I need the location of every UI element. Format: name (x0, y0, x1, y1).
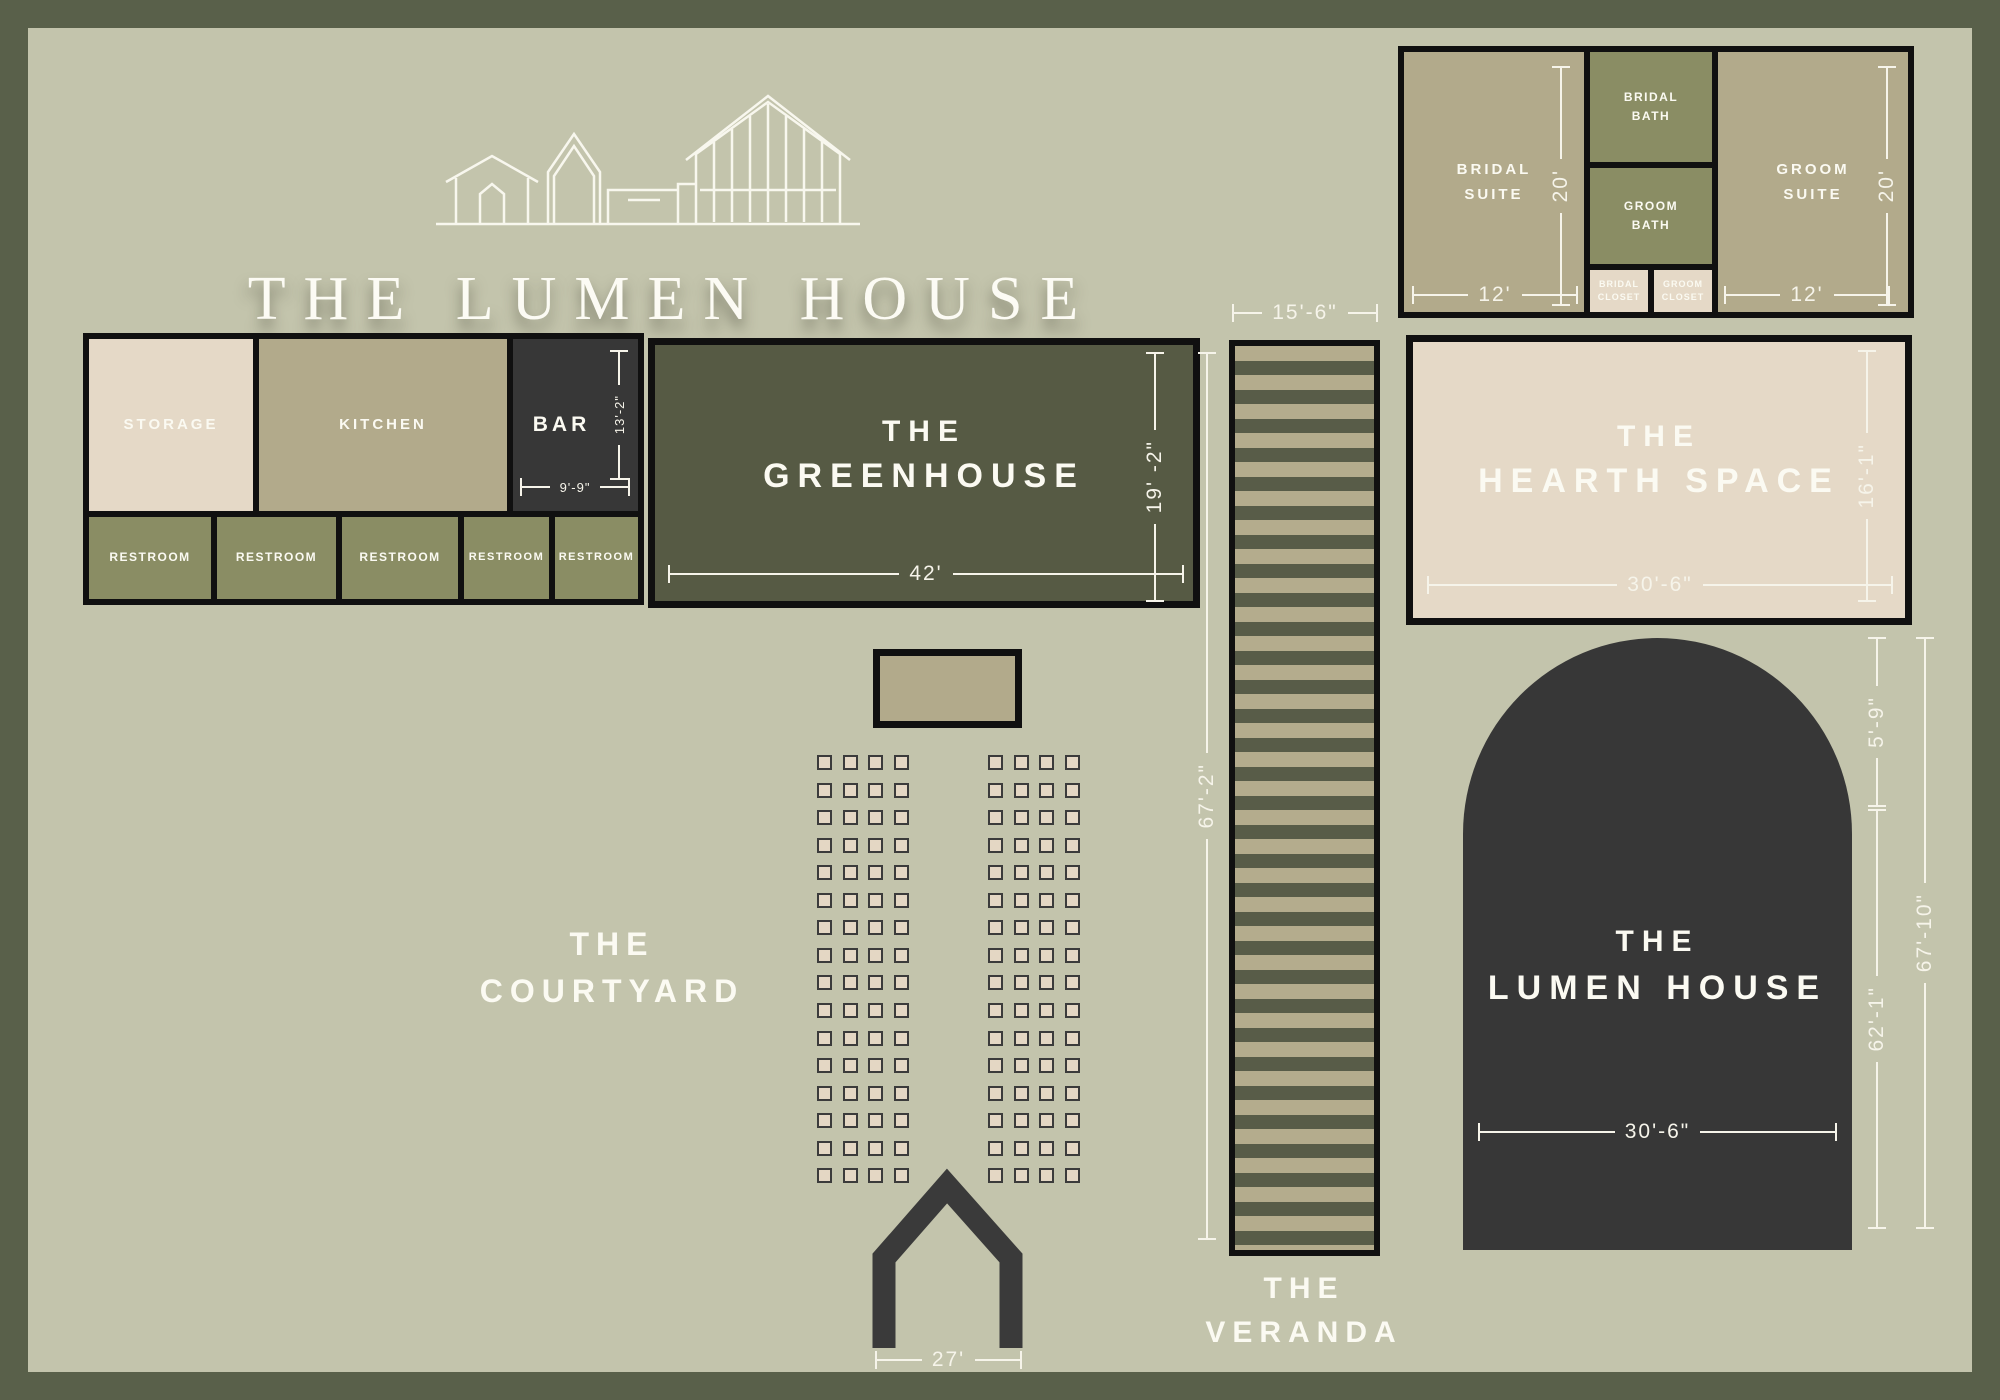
chair (1065, 1003, 1080, 1018)
bridal-closet-label: BRIDAL (1599, 279, 1639, 289)
greenhouse-height-dimension: 19' -2" (1146, 352, 1164, 602)
greenhouse-label: THE (763, 415, 1085, 449)
chair (1039, 1031, 1054, 1046)
room-kitchen: KITCHEN (259, 339, 507, 511)
chair (894, 783, 909, 798)
chair (843, 1086, 858, 1101)
lumen-house-lower-height-dimension: 62'-1" (1868, 809, 1886, 1229)
chair (843, 1113, 858, 1128)
restroom-label: RESTROOM (236, 548, 317, 567)
chair (988, 1141, 1003, 1156)
chair (1039, 755, 1054, 770)
kitchen-label: KITCHEN (339, 412, 427, 438)
venue-floor-plan: THE LUMEN HOUSE BRIDAL SUITE BRIDAL BATH… (0, 0, 2000, 1400)
hearth-height-dimension: 16'-1" (1858, 350, 1876, 602)
restroom-label: RESTROOM (559, 549, 635, 567)
room-restroom-2: RESTROOM (217, 517, 336, 599)
chair (1065, 1086, 1080, 1101)
chair (843, 755, 858, 770)
chair (894, 755, 909, 770)
bar-height-dimension: 13'-2" (610, 350, 628, 480)
chair (1014, 1031, 1029, 1046)
chair (1039, 1003, 1054, 1018)
chair (988, 810, 1003, 825)
chair (1014, 1141, 1029, 1156)
chair (817, 1113, 832, 1128)
groom-suite-height-dimension: 20' (1878, 66, 1896, 306)
chair (1039, 1141, 1054, 1156)
greenhouse-width-dimension: 42' (668, 565, 1184, 583)
chair (1039, 920, 1054, 935)
chair (1014, 920, 1029, 935)
ceremony-arbor (850, 1160, 1050, 1360)
groom-bath-label: GROOM (1624, 199, 1678, 213)
chair (868, 810, 883, 825)
chair (843, 975, 858, 990)
chair (1014, 755, 1029, 770)
chair (1065, 1141, 1080, 1156)
chair (1039, 893, 1054, 908)
chair (988, 1003, 1003, 1018)
chair (988, 1086, 1003, 1101)
chair (988, 948, 1003, 963)
chair (894, 1113, 909, 1128)
room-restroom-1: RESTROOM (89, 517, 211, 599)
bar-label: BAR (533, 413, 591, 437)
courtyard-stage (873, 649, 1022, 728)
room-restroom-5: RESTROOM (555, 517, 638, 599)
veranda-height-dimension: 67'-2" (1198, 352, 1216, 1240)
chair (988, 755, 1003, 770)
chair (868, 1058, 883, 1073)
chair (1065, 1058, 1080, 1073)
chair (1065, 948, 1080, 963)
chair (894, 975, 909, 990)
chair (894, 810, 909, 825)
chair (1065, 920, 1080, 935)
chair (817, 1003, 832, 1018)
chair (817, 783, 832, 798)
chair (1065, 1113, 1080, 1128)
chair (843, 893, 858, 908)
courtyard-label: THE COURTYARD (412, 926, 812, 1010)
chair (868, 1113, 883, 1128)
chair (1039, 865, 1054, 880)
venue-logo-illustration (428, 72, 868, 242)
chair (894, 1058, 909, 1073)
chair (988, 783, 1003, 798)
chair (843, 865, 858, 880)
chair (1039, 975, 1054, 990)
groom-suite-width-dimension: 12' (1724, 286, 1890, 304)
restroom-label: RESTROOM (359, 548, 440, 567)
bridal-suite-label: BRIDAL (1457, 161, 1532, 178)
room-groom-closet: GROOM CLOSET (1654, 270, 1712, 312)
chair (868, 948, 883, 963)
chair (843, 783, 858, 798)
chair (988, 838, 1003, 853)
chair (1065, 1168, 1080, 1183)
chair (1014, 810, 1029, 825)
chair (843, 1058, 858, 1073)
chair (868, 1003, 883, 1018)
chair (1039, 810, 1054, 825)
chair (894, 920, 909, 935)
chair (1039, 1058, 1054, 1073)
chair (868, 755, 883, 770)
room-restroom-4: RESTROOM (464, 517, 549, 599)
chair (894, 948, 909, 963)
room-groom-bath: GROOM BATH (1590, 168, 1712, 264)
chair (868, 1141, 883, 1156)
bar-width-dimension: 9'-9" (520, 478, 630, 496)
chair (817, 838, 832, 853)
chair (817, 1168, 832, 1183)
chair (868, 920, 883, 935)
chair (1065, 893, 1080, 908)
chair (817, 893, 832, 908)
room-bridal-closet: BRIDAL CLOSET (1590, 270, 1648, 312)
chair (843, 810, 858, 825)
restroom-label: RESTROOM (469, 549, 545, 567)
chair (843, 1003, 858, 1018)
veranda-label: THE VERANDA (1204, 1272, 1404, 1350)
lumen-house-upper-height-dimension: 5'-9" (1868, 637, 1886, 807)
veranda-width-dimension: 15'-6" (1232, 304, 1378, 322)
chair (988, 1113, 1003, 1128)
bridal-suite-width-dimension: 12' (1412, 286, 1578, 304)
chair (988, 920, 1003, 935)
room-storage: STORAGE (89, 339, 253, 511)
chair (1065, 975, 1080, 990)
chair (868, 783, 883, 798)
arbor-width-dimension: 27' (875, 1351, 1022, 1369)
chair (894, 1003, 909, 1018)
chair (817, 1058, 832, 1073)
chair (868, 1086, 883, 1101)
chair (843, 1141, 858, 1156)
chair (868, 1031, 883, 1046)
chair (988, 893, 1003, 908)
groom-closet-label: GROOM (1663, 279, 1703, 289)
chair (1014, 1113, 1029, 1128)
chair (817, 975, 832, 990)
chair (817, 755, 832, 770)
chair (1014, 783, 1029, 798)
storage-label: STORAGE (124, 412, 219, 438)
chair (894, 1031, 909, 1046)
chair (843, 838, 858, 853)
chair (988, 1058, 1003, 1073)
chair (1014, 893, 1029, 908)
chair (1039, 948, 1054, 963)
chair (1039, 1086, 1054, 1101)
chair (988, 975, 1003, 990)
room-bridal-bath: BRIDAL BATH (1590, 52, 1712, 162)
chair (1065, 783, 1080, 798)
chair (817, 948, 832, 963)
bridal-suite-height-dimension: 20' (1552, 66, 1570, 306)
chair (1039, 783, 1054, 798)
chair (1014, 1086, 1029, 1101)
chair (1014, 975, 1029, 990)
chair (843, 1031, 858, 1046)
chair (894, 865, 909, 880)
chair (894, 838, 909, 853)
chair (868, 975, 883, 990)
chair (817, 920, 832, 935)
chair (1065, 755, 1080, 770)
chair (817, 810, 832, 825)
chair (868, 838, 883, 853)
chair (843, 920, 858, 935)
restroom-label: RESTROOM (109, 548, 190, 567)
room-veranda (1229, 340, 1380, 1256)
chair (1014, 1003, 1029, 1018)
chair (1014, 838, 1029, 853)
chair (1014, 865, 1029, 880)
chair (868, 893, 883, 908)
room-restroom-3: RESTROOM (342, 517, 458, 599)
chair (988, 865, 1003, 880)
chair (1065, 810, 1080, 825)
chair (1014, 948, 1029, 963)
chair (817, 1031, 832, 1046)
venue-title: THE LUMEN HOUSE (172, 264, 1172, 335)
chair (1039, 838, 1054, 853)
chair (894, 893, 909, 908)
chair (988, 1031, 1003, 1046)
lumen-house-label: THE LUMEN HOUSE (1463, 925, 1852, 1008)
lumen-house-total-height-dimension: 67'-10" (1916, 637, 1934, 1229)
chair (1065, 1031, 1080, 1046)
bridal-bath-label: BRIDAL (1624, 90, 1678, 104)
hearth-width-dimension: 30'-6" (1427, 576, 1893, 594)
chair (843, 948, 858, 963)
chair (894, 1086, 909, 1101)
chair (1014, 1058, 1029, 1073)
hearth-label: THE (1478, 420, 1840, 454)
chair (1065, 838, 1080, 853)
chair (894, 1141, 909, 1156)
chair (817, 865, 832, 880)
chair (817, 1141, 832, 1156)
groom-suite-label: GROOM (1776, 161, 1849, 178)
chair (817, 1086, 832, 1101)
chair (1065, 865, 1080, 880)
chair (1039, 1113, 1054, 1128)
lumen-house-width-dimension: 30'-6" (1478, 1123, 1837, 1141)
plan-background: THE LUMEN HOUSE BRIDAL SUITE BRIDAL BATH… (28, 28, 1972, 1372)
chair (868, 865, 883, 880)
